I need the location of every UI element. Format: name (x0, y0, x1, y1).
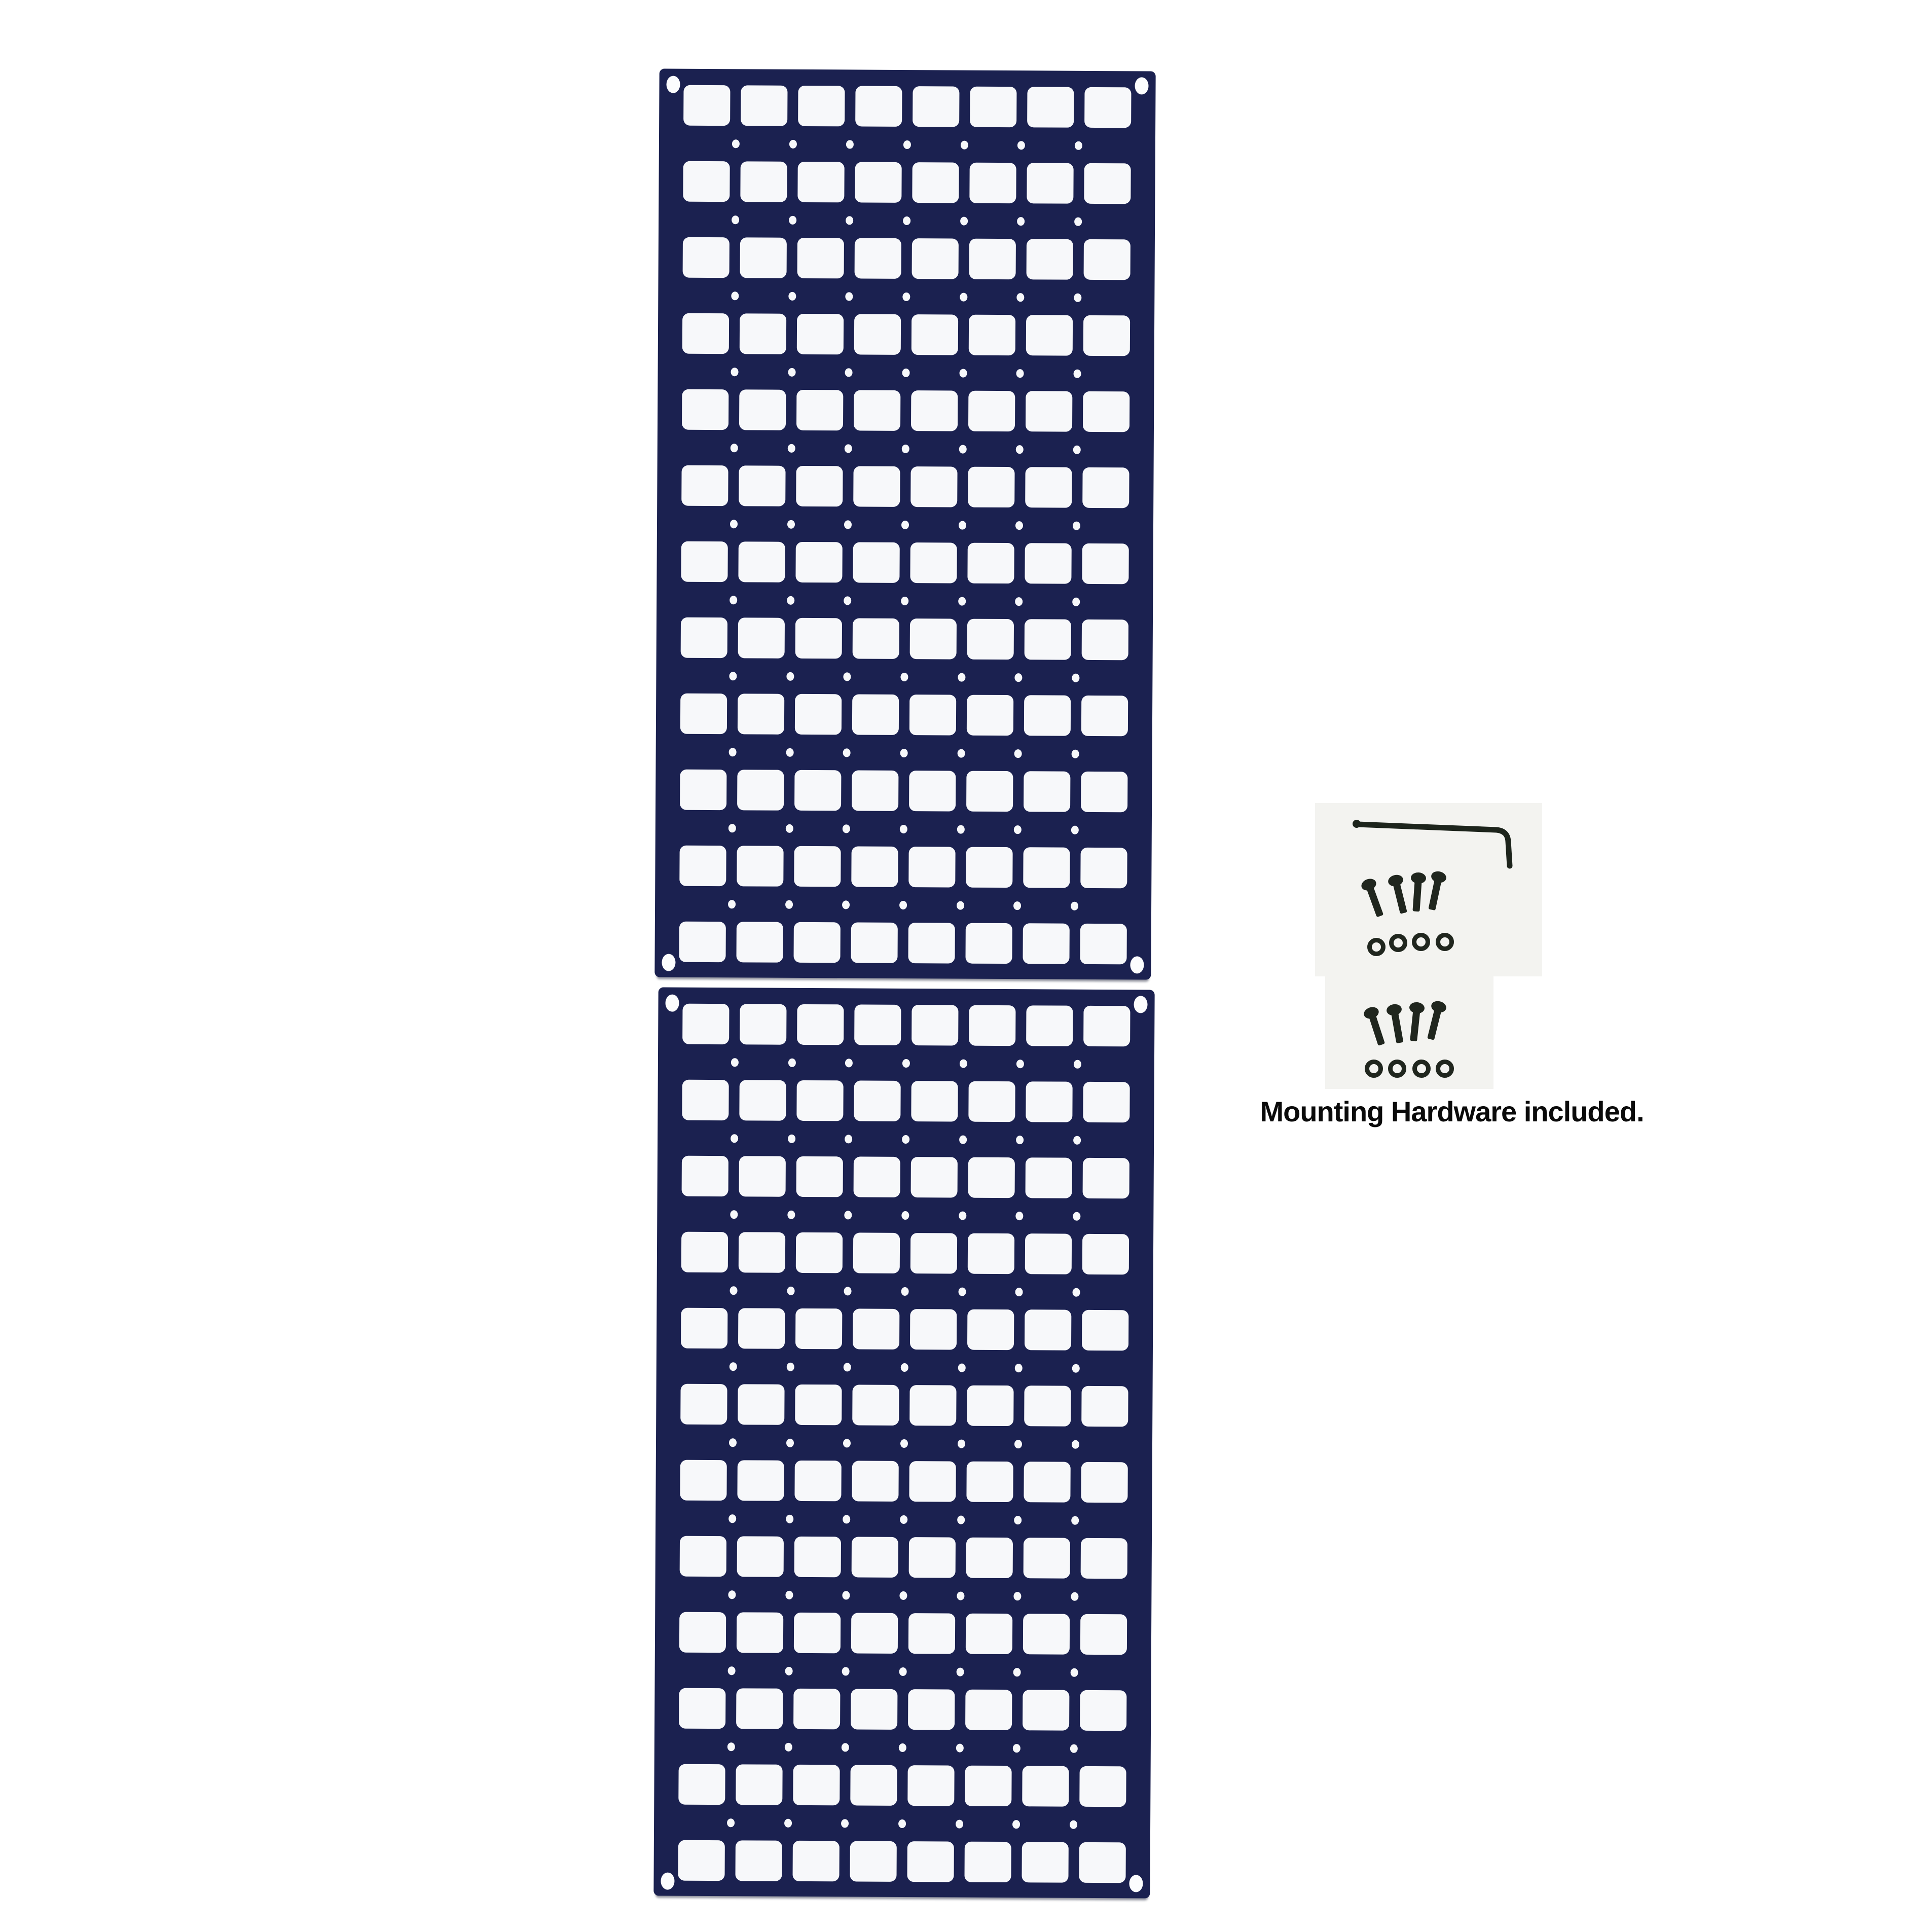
molle-slot-cutout (964, 1842, 1011, 1882)
stitch-hole (786, 748, 793, 756)
stitch-hole (843, 1515, 850, 1523)
cutout-row (679, 922, 1126, 965)
molle-slot-cutout (1026, 391, 1072, 431)
stitch-hole-row (682, 1120, 1129, 1158)
molle-slot-cutout (1025, 619, 1071, 660)
molle-slot-cutout (682, 389, 728, 430)
molle-slot-cutout (1084, 87, 1131, 128)
molle-slot-cutout (852, 1461, 898, 1501)
molle-slot-cutout (907, 1841, 954, 1882)
stitch-hole (730, 1210, 738, 1219)
stitch-hole (959, 1135, 967, 1144)
stitch-hole (901, 1363, 908, 1371)
stitch-hole (1072, 1288, 1080, 1296)
stitch-hole-row (680, 810, 1127, 848)
molle-slot-cutout (1080, 848, 1127, 888)
molle-slot-cutout (910, 1233, 957, 1273)
stitch-hole (1015, 597, 1023, 606)
hardware-caption: Mounting Hardware included. (1198, 1095, 1705, 1128)
stitch-hole (727, 1818, 735, 1827)
molle-slot-cutout (682, 1004, 729, 1044)
stitch-hole (1073, 1212, 1080, 1220)
molle-slot-cutout (969, 163, 1016, 203)
molle-slot-cutout (683, 85, 730, 126)
molle-slot-cutout (682, 1080, 728, 1120)
stitch-hole (789, 215, 796, 224)
molle-slot-cutout (738, 1384, 784, 1425)
stitch-hole (788, 291, 796, 300)
stitch-hole (960, 293, 967, 301)
stitch-hole (900, 1515, 907, 1523)
stitch-hole (784, 1742, 792, 1751)
stitch-hole (958, 1363, 965, 1372)
molle-slot-cutout (909, 695, 956, 735)
molle-slot-cutout (794, 1461, 841, 1501)
stitch-hole-row (682, 430, 1129, 468)
molle-slot-cutout (739, 465, 785, 506)
molle-slot-cutout (1081, 772, 1127, 812)
mounting-hole (1129, 1875, 1143, 1892)
stitch-hole-row (681, 1348, 1128, 1387)
molle-slot-cutout (1025, 467, 1072, 507)
molle-slot-cutout (682, 313, 729, 354)
stitch-hole (1072, 749, 1079, 758)
stitch-hole (961, 140, 968, 149)
stitch-hole (785, 824, 793, 832)
molle-slot-cutout (680, 1460, 726, 1501)
stitch-hole (789, 139, 797, 148)
stitch-hole (1072, 673, 1079, 682)
molle-slot-cutout (854, 314, 901, 354)
molle-slot-cutout (1080, 1614, 1127, 1655)
stitch-hole (958, 1287, 966, 1296)
stitch-hole-row (679, 1653, 1126, 1691)
molle-slot-cutout (1023, 1690, 1069, 1730)
molle-slot-cutout (795, 694, 842, 735)
stitch-hole (1071, 1516, 1079, 1524)
stitch-hole (1071, 1668, 1078, 1676)
product-image: Mounting Hardware included. (0, 0, 1932, 1932)
molle-slot-cutout (1027, 87, 1074, 127)
stitch-hole (731, 368, 739, 376)
stitch-hole (731, 1134, 738, 1143)
molle-slot-cutout (968, 1081, 1015, 1122)
stitch-hole-row (681, 582, 1128, 620)
cutout-row (679, 846, 1127, 889)
stitch-hole (1014, 1516, 1022, 1524)
cutout-row (678, 1764, 1126, 1807)
molle-slot-cutout (909, 1537, 956, 1578)
stitch-hole (1074, 1060, 1081, 1068)
stitch-hole (1072, 1364, 1080, 1372)
mounting-hole (661, 1872, 674, 1889)
stitch-hole (1015, 521, 1023, 530)
molle-slot-cutout (740, 1004, 786, 1044)
molle-slot-cutout (737, 1536, 784, 1577)
molle-slot-cutout (851, 846, 898, 887)
molle-slot-cutout (739, 1080, 786, 1120)
molle-slot-cutout (1024, 771, 1070, 812)
molle-slot-cutout (908, 923, 955, 963)
molle-slot-cutout (679, 1612, 726, 1653)
molle-slot-cutout (796, 1156, 843, 1197)
molle-slot-cutout (910, 542, 957, 583)
mounting-hole (665, 995, 679, 1012)
molle-slot-cutout (736, 1764, 782, 1805)
molle-slot-cutout (908, 1613, 955, 1654)
molle-slot-cutout (1082, 1310, 1128, 1351)
stitch-hole (842, 1743, 849, 1752)
stitch-hole (786, 1514, 793, 1523)
stitch-hole (1073, 369, 1081, 378)
molle-slot-cutout (740, 237, 787, 278)
molle-slot-cutout (851, 922, 897, 963)
stitch-hole-row (678, 1805, 1126, 1843)
cutout-row (678, 1840, 1125, 1883)
molle-slot-cutout (967, 695, 1013, 736)
stitch-hole (787, 1286, 794, 1295)
stitch-hole (786, 672, 794, 680)
stitch-hole (1015, 1288, 1023, 1296)
stitch-hole-row (680, 1501, 1127, 1539)
molle-slot-cutout (793, 1689, 840, 1729)
molle-slot-cutout (968, 391, 1015, 431)
molle-slot-cutout (738, 1308, 785, 1348)
cutout-row (682, 1080, 1129, 1123)
molle-slot-cutout (1023, 1614, 1070, 1654)
molle-slot-cutout (738, 694, 784, 734)
molle-slot-cutout (793, 922, 840, 963)
stitch-hole (845, 368, 853, 377)
molle-slot-cutout (738, 541, 785, 582)
stitch-hole-row (682, 1044, 1130, 1082)
stitch-hole-row (681, 506, 1129, 544)
stitch-hole (1073, 445, 1081, 454)
stitch-hole (958, 1439, 965, 1448)
stitch-hole (844, 520, 852, 529)
stitch-hole-row (680, 734, 1127, 772)
molle-slot-cutout (1079, 1842, 1125, 1883)
molle-slot-cutout (853, 1308, 899, 1349)
molle-slot-cutout (680, 694, 727, 734)
stitch-hole-row (683, 126, 1131, 164)
molle-slot-cutout (966, 771, 1013, 812)
stitch-hole (730, 1362, 737, 1371)
molle-slot-cutout (739, 1156, 786, 1196)
cutout-row (683, 85, 1131, 128)
molle-slot-cutout (910, 618, 957, 659)
molle-slot-cutout (1082, 1234, 1129, 1274)
molle-slot-cutout (913, 86, 959, 127)
stitch-hole (900, 824, 907, 833)
molle-slot-cutout (679, 846, 726, 886)
stitch-hole (1071, 1592, 1078, 1600)
stitch-hole (957, 825, 964, 833)
molle-slot-cutout (1026, 315, 1073, 355)
stitch-hole (902, 444, 909, 453)
stitch-hole (1013, 901, 1021, 910)
molle-slot-cutout (1022, 1766, 1069, 1806)
mounting-hole (1130, 956, 1144, 973)
stitch-hole (1075, 141, 1082, 150)
stitch-hole (898, 1819, 906, 1828)
stitch-hole (958, 673, 965, 681)
stitch-hole-row (682, 278, 1130, 316)
molle-panel-top (654, 68, 1155, 979)
molle-slot-cutout (740, 313, 786, 354)
stitch-hole (845, 1211, 852, 1219)
molle-slot-cutout (969, 239, 1016, 279)
molle-slot-cutout (794, 1537, 841, 1577)
molle-slot-cutout (907, 1765, 954, 1806)
stitch-hole (788, 368, 795, 376)
molle-slot-cutout (854, 1156, 900, 1197)
molle-slot-cutout (739, 389, 786, 430)
stitch-hole (785, 900, 793, 908)
molle-slot-cutout (794, 770, 841, 811)
molle-slot-cutout (1027, 239, 1073, 279)
stitch-hole (960, 1059, 967, 1068)
stitch-hole (1073, 1136, 1081, 1144)
stitch-hole (957, 1515, 965, 1524)
stitch-hole (846, 140, 854, 149)
stitch-hole (731, 1058, 739, 1067)
stitch-hole (842, 900, 850, 909)
molle-slot-cutout (1081, 1538, 1127, 1579)
molle-panel-bottom (653, 987, 1154, 1898)
molle-slot-cutout (850, 1765, 897, 1805)
molle-slot-cutout (795, 618, 842, 659)
stitch-hole (1017, 217, 1025, 226)
molle-slot-cutout (852, 1384, 899, 1425)
molle-slot-cutout (967, 1309, 1014, 1350)
stitch-hole (901, 1287, 908, 1295)
stitch-hole (730, 596, 737, 604)
stitch-hole (960, 216, 968, 225)
molle-slot-cutout (911, 1081, 958, 1121)
molle-slot-cutout (681, 1232, 728, 1272)
stitch-hole-row (681, 1196, 1129, 1234)
molle-slot-cutout (1026, 1157, 1072, 1198)
stitch-hole (901, 520, 909, 529)
molle-slot-cutout (912, 238, 959, 279)
stitch-hole (902, 1135, 909, 1143)
stitch-hole (841, 1819, 849, 1828)
cutout-row (679, 1688, 1126, 1731)
molle-slot-cutout (966, 847, 1012, 888)
stitch-hole (1013, 1668, 1021, 1676)
molle-slot-cutout (909, 1385, 956, 1426)
stitch-hole (1017, 141, 1025, 150)
stitch-hole (785, 1590, 793, 1599)
molle-slot-cutout (679, 922, 725, 962)
stitch-hole (1070, 1744, 1078, 1753)
stitch-hole-row (679, 1729, 1126, 1767)
stitch-hole (732, 215, 739, 224)
molle-slot-cutout (966, 1538, 1013, 1578)
molle-slot-cutout (1083, 1082, 1129, 1122)
molle-slot-cutout (1026, 1005, 1073, 1046)
stitch-hole (844, 1287, 852, 1295)
molle-slot-cutout (737, 846, 783, 886)
molle-slot-cutout (681, 541, 727, 582)
molle-slot-cutout (854, 1004, 901, 1045)
stitch-hole (900, 748, 908, 757)
molle-slot-cutout (794, 846, 841, 887)
molle-slot-cutout (969, 1005, 1015, 1046)
stitch-hole (727, 1742, 735, 1751)
stitch-hole (900, 1439, 908, 1447)
molle-slot-cutout (1080, 924, 1126, 964)
mounting-hole (662, 954, 675, 971)
stitch-hole (729, 1438, 737, 1447)
molle-slot-cutout (1083, 315, 1130, 356)
molle-slot-cutout (853, 542, 899, 582)
molle-slot-cutout (1083, 1158, 1129, 1198)
cutout-row (681, 617, 1128, 661)
stitch-hole (956, 1667, 964, 1676)
stitch-hole (845, 444, 852, 453)
stitch-hole (843, 1439, 851, 1447)
stitch-hole (728, 900, 736, 908)
stitch-hole (730, 520, 738, 528)
molle-slot-cutout (912, 1005, 958, 1045)
cutout-row (680, 770, 1127, 813)
stitch-hole (1070, 1820, 1077, 1829)
stitch-hole (1014, 749, 1022, 758)
stitch-hole (903, 216, 910, 225)
molle-slot-cutout (683, 161, 730, 202)
stitch-hole-row (680, 1425, 1128, 1463)
stitch-hole (959, 1211, 966, 1220)
stitch-hole (729, 748, 737, 756)
molle-slot-cutout (852, 1537, 898, 1577)
stitch-hole (728, 824, 736, 832)
stitch-hole (843, 824, 850, 833)
stitch-hole-row (680, 658, 1128, 696)
molle-slot-cutout (1024, 695, 1071, 736)
molle-slot-cutout (1082, 467, 1129, 508)
molle-slot-cutout (1084, 163, 1131, 204)
stitch-hole (843, 748, 851, 757)
stitch-hole (788, 1058, 796, 1067)
molle-slot-cutout (911, 390, 958, 431)
molle-slot-cutout (680, 1536, 726, 1577)
molle-slot-cutout (1023, 847, 1070, 888)
molle-slot-cutout (1022, 1842, 1068, 1882)
molle-slot-cutout (969, 315, 1015, 355)
cutout-row (683, 237, 1131, 280)
stitch-hole (958, 597, 966, 605)
molle-slot-cutout (909, 771, 956, 811)
molle-slot-cutout (1027, 163, 1073, 203)
molle-slot-cutout (854, 1080, 900, 1121)
molle-slot-cutout (853, 1232, 900, 1273)
molle-slot-cutout (678, 1840, 724, 1881)
molle-slot-cutout (967, 543, 1014, 584)
molle-slot-cutout (1084, 239, 1131, 280)
stitch-hole (845, 1059, 853, 1067)
hardware-photo (1308, 801, 1572, 1105)
stitch-hole (1016, 1136, 1024, 1144)
stitch-hole-row (681, 1272, 1128, 1310)
molle-slot-cutout (910, 1309, 957, 1350)
stitch-hole (899, 900, 907, 909)
molle-slot-cutout (737, 770, 784, 810)
stitch-hole (899, 1667, 907, 1675)
stitch-hole (788, 1134, 795, 1143)
stitch-hole (843, 1591, 850, 1599)
stitch-hole (787, 444, 795, 452)
molle-slot-cutout (852, 694, 899, 735)
molle-slot-cutout (1025, 1309, 1071, 1350)
mounting-hole (1135, 77, 1148, 94)
molle-slot-cutout (908, 1689, 955, 1730)
molle-slot-cutout (794, 1613, 841, 1653)
stitch-hole (787, 596, 794, 604)
stitch-hole (901, 1211, 909, 1219)
stitch-hole (845, 1135, 852, 1143)
stitch-hole (956, 1743, 963, 1752)
molle-slot-cutout (740, 161, 787, 202)
molle-slot-cutout (968, 467, 1014, 507)
molle-slot-cutout (735, 1840, 782, 1881)
stitch-hole (1072, 597, 1080, 606)
stitch-hole (844, 672, 851, 681)
stitch-hole (1071, 901, 1078, 910)
molle-slot-cutout (851, 1689, 897, 1729)
stitch-hole (786, 1362, 794, 1371)
cutout-row (680, 1384, 1128, 1427)
molle-slot-cutout (680, 1384, 727, 1425)
stitch-hole (844, 596, 851, 605)
molle-slot-cutout (741, 85, 787, 126)
molle-slot-cutout (910, 466, 957, 507)
stitch-hole (731, 291, 739, 300)
stitch-hole-row (679, 886, 1127, 924)
molle-slot-cutout (796, 390, 843, 430)
cutout-row (681, 541, 1128, 585)
cutout-row (681, 1308, 1128, 1351)
mounting-hole (666, 76, 680, 93)
stitch-hole (842, 1667, 850, 1675)
molle-slot-cutout (1081, 1462, 1127, 1503)
stitch-hole (729, 672, 737, 680)
stitch-hole (786, 1438, 794, 1447)
stitch-hole (902, 292, 910, 301)
molle-slot-cutout (1024, 1538, 1070, 1578)
stitch-hole (900, 672, 908, 681)
molle-slot-cutout (855, 86, 902, 126)
stitch-hole (844, 1363, 851, 1371)
stitch-hole (728, 1514, 736, 1523)
molle-slot-cutout (793, 1765, 840, 1805)
cutout-row (682, 389, 1129, 432)
molle-slot-cutout (796, 1232, 843, 1273)
stitch-hole (732, 139, 740, 148)
stitch-hole (1015, 1364, 1023, 1372)
molle-slot-cutout (798, 86, 845, 126)
molle-slot-cutout (1083, 1006, 1130, 1046)
stitch-hole (1072, 1440, 1079, 1448)
molle-slot-cutout (1026, 1081, 1072, 1122)
molle-slot-cutout (852, 770, 898, 811)
stitch-hole (787, 520, 795, 528)
stitch-hole (899, 1591, 907, 1599)
molle-slot-cutout (1083, 391, 1129, 432)
stitch-hole (1016, 369, 1024, 378)
stitch-hole (1016, 1212, 1024, 1220)
